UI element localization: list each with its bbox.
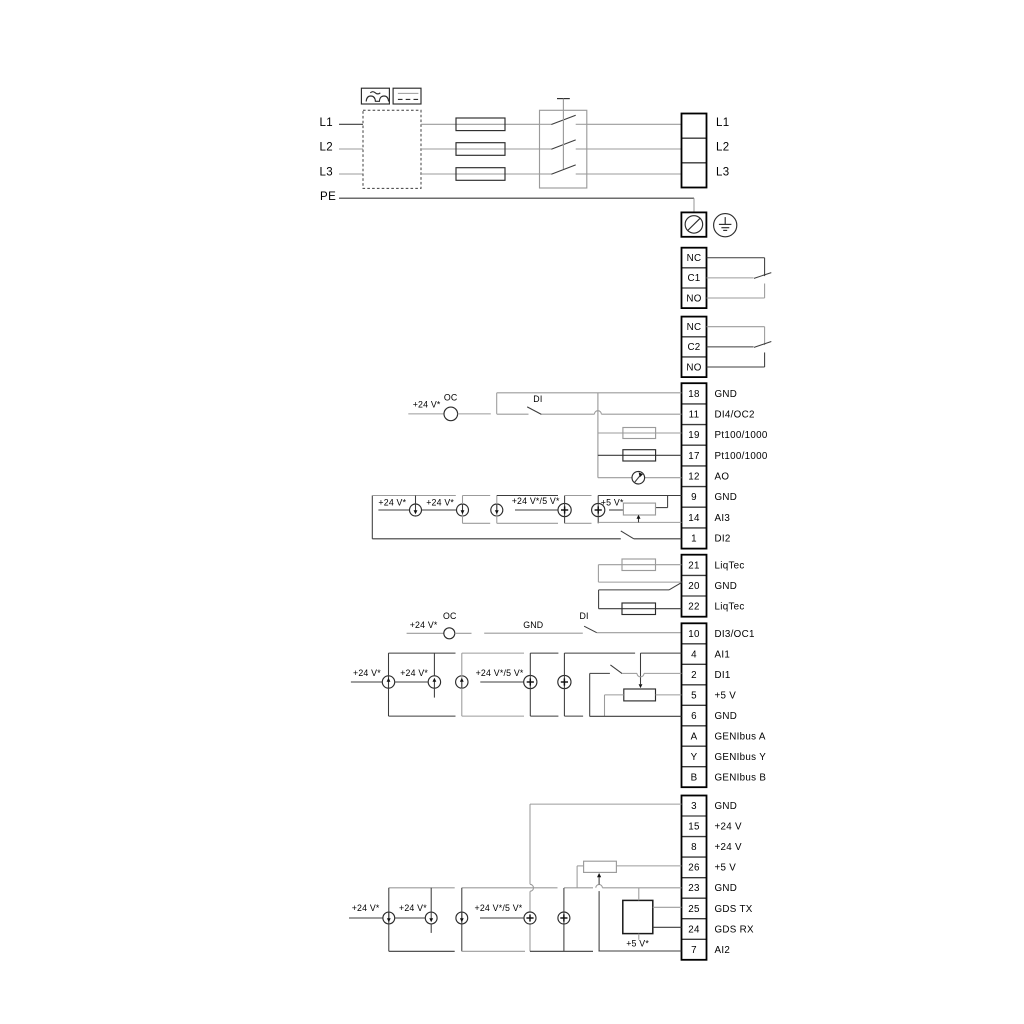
svg-text:GND: GND — [715, 581, 738, 592]
svg-text:23: 23 — [688, 883, 700, 894]
svg-text:L1: L1 — [716, 117, 730, 129]
svg-text:+24 V*: +24 V* — [413, 400, 441, 410]
svg-text:DI3/OC1: DI3/OC1 — [715, 629, 755, 640]
svg-text:LiqTec: LiqTec — [715, 602, 745, 613]
svg-text:+24 V*/5 V*: +24 V*/5 V* — [475, 903, 523, 913]
svg-text:+24 V*: +24 V* — [353, 668, 381, 678]
svg-text:DI2: DI2 — [715, 534, 731, 545]
svg-text:PE: PE — [320, 191, 336, 203]
svg-text:6: 6 — [691, 711, 697, 722]
svg-text:15: 15 — [688, 822, 700, 833]
svg-text:OC: OC — [444, 393, 458, 403]
svg-text:DI1: DI1 — [715, 670, 731, 681]
svg-text:5: 5 — [691, 690, 697, 701]
svg-text:+5 V: +5 V — [715, 863, 737, 874]
svg-text:LiqTec: LiqTec — [715, 560, 745, 571]
svg-text:20: 20 — [688, 581, 700, 592]
svg-text:+24 V*: +24 V* — [399, 903, 427, 913]
svg-text:24: 24 — [688, 924, 700, 935]
svg-text:DI: DI — [533, 394, 542, 404]
svg-text:12: 12 — [688, 472, 700, 483]
svg-text:+5 V: +5 V — [715, 690, 737, 701]
svg-text:10: 10 — [688, 629, 700, 640]
svg-text:B: B — [691, 772, 698, 783]
svg-text:+24 V*: +24 V* — [400, 668, 428, 678]
svg-text:L3: L3 — [716, 167, 730, 179]
svg-text:21: 21 — [688, 560, 700, 571]
svg-text:GND: GND — [715, 883, 738, 894]
svg-text:GND: GND — [715, 711, 738, 722]
svg-text:DI: DI — [580, 611, 589, 621]
svg-text:+24 V*: +24 V* — [352, 903, 380, 913]
svg-text:Pt100/1000: Pt100/1000 — [715, 430, 768, 441]
svg-text:GND: GND — [523, 620, 543, 630]
svg-text:25: 25 — [688, 904, 700, 915]
svg-text:Y: Y — [691, 752, 698, 763]
svg-text:+5 V*: +5 V* — [626, 938, 649, 948]
svg-text:22: 22 — [688, 602, 700, 613]
svg-text:4: 4 — [691, 649, 697, 660]
svg-text:C1: C1 — [687, 273, 700, 284]
svg-text:14: 14 — [688, 513, 700, 524]
svg-text:7: 7 — [691, 945, 697, 956]
svg-text:OC: OC — [443, 611, 457, 621]
svg-text:L2: L2 — [320, 142, 334, 154]
svg-text:GENIbus B: GENIbus B — [715, 772, 767, 783]
svg-text:8: 8 — [691, 842, 697, 853]
svg-text:GENIbus A: GENIbus A — [715, 731, 766, 742]
svg-text:18: 18 — [688, 389, 700, 400]
svg-text:NO: NO — [686, 293, 701, 304]
svg-text:GND: GND — [715, 801, 738, 812]
svg-text:+5 V*: +5 V* — [601, 498, 624, 508]
svg-text:AI2: AI2 — [715, 945, 731, 956]
svg-text:+24 V: +24 V — [715, 842, 743, 853]
svg-text:AI3: AI3 — [715, 513, 731, 524]
svg-text:2: 2 — [691, 670, 697, 681]
svg-text:+24 V: +24 V — [715, 822, 743, 833]
svg-text:A: A — [691, 731, 698, 742]
svg-text:L2: L2 — [716, 142, 730, 154]
svg-text:L3: L3 — [320, 167, 334, 179]
svg-text:L1: L1 — [320, 117, 334, 129]
svg-text:GDS RX: GDS RX — [715, 924, 755, 935]
svg-text:GENIbus Y: GENIbus Y — [715, 752, 767, 763]
svg-text:GND: GND — [715, 492, 738, 503]
svg-text:GDS TX: GDS TX — [715, 904, 753, 915]
svg-text:+24 V*/5 V*: +24 V*/5 V* — [512, 496, 560, 506]
svg-text:1: 1 — [691, 534, 697, 545]
svg-text:AI1: AI1 — [715, 649, 731, 660]
svg-text:+24 V*: +24 V* — [426, 498, 454, 508]
svg-text:19: 19 — [688, 430, 700, 441]
svg-text:17: 17 — [688, 451, 700, 462]
svg-text:C2: C2 — [687, 342, 700, 353]
svg-text:GND: GND — [715, 389, 738, 400]
svg-text:DI4/OC2: DI4/OC2 — [715, 410, 755, 421]
svg-text:+24 V*: +24 V* — [378, 498, 406, 508]
svg-text:3: 3 — [691, 801, 697, 812]
svg-text:NC: NC — [687, 322, 702, 333]
svg-text:AO: AO — [715, 472, 730, 483]
svg-text:+24 V*: +24 V* — [410, 620, 438, 630]
svg-text:+24 V*/5 V*: +24 V*/5 V* — [476, 668, 524, 678]
svg-text:26: 26 — [688, 863, 700, 874]
svg-text:11: 11 — [689, 410, 700, 421]
svg-text:NC: NC — [687, 253, 702, 264]
svg-text:9: 9 — [691, 492, 697, 503]
svg-text:Pt100/1000: Pt100/1000 — [715, 451, 768, 462]
svg-text:NO: NO — [686, 362, 701, 373]
